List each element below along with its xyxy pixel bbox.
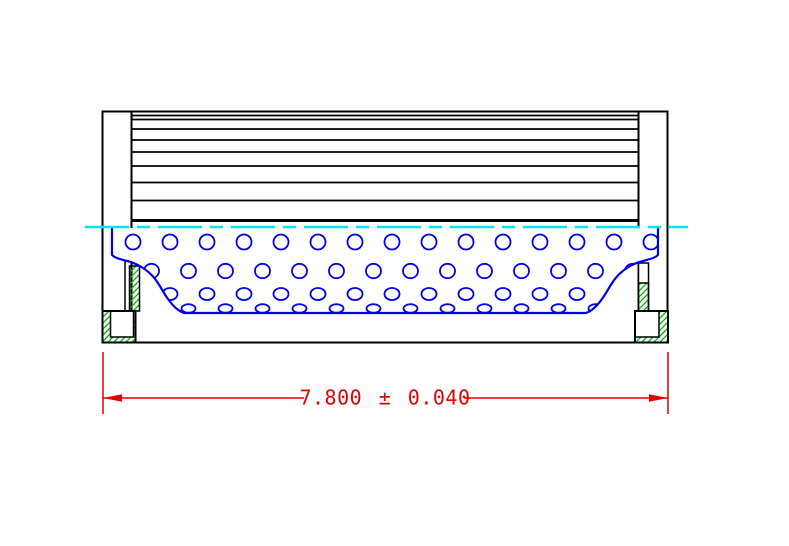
left-foot-step (111, 311, 134, 337)
right-media-end-strip (639, 263, 649, 311)
filter-cross-section-drawing: 7.800 ± 0.040 (0, 0, 789, 546)
dimension-label: 7.800 ± 0.040 (299, 386, 470, 410)
right-foot (635, 311, 668, 343)
right-media-end-strip-hatch (639, 283, 649, 311)
left-end-cap (103, 112, 132, 312)
length-dimension: 7.800 ± 0.040 (103, 352, 668, 414)
pleat-block (132, 112, 639, 221)
drawing-canvas: 7.800 ± 0.040 (0, 0, 789, 546)
right-foot-step (635, 311, 659, 337)
perforated-core (112, 228, 659, 313)
left-media-end-strip (130, 266, 140, 311)
right-arrowhead-icon (649, 394, 668, 402)
left-arrowhead-icon (103, 394, 122, 402)
left-foot (103, 311, 136, 343)
perforation-hole (145, 304, 159, 313)
